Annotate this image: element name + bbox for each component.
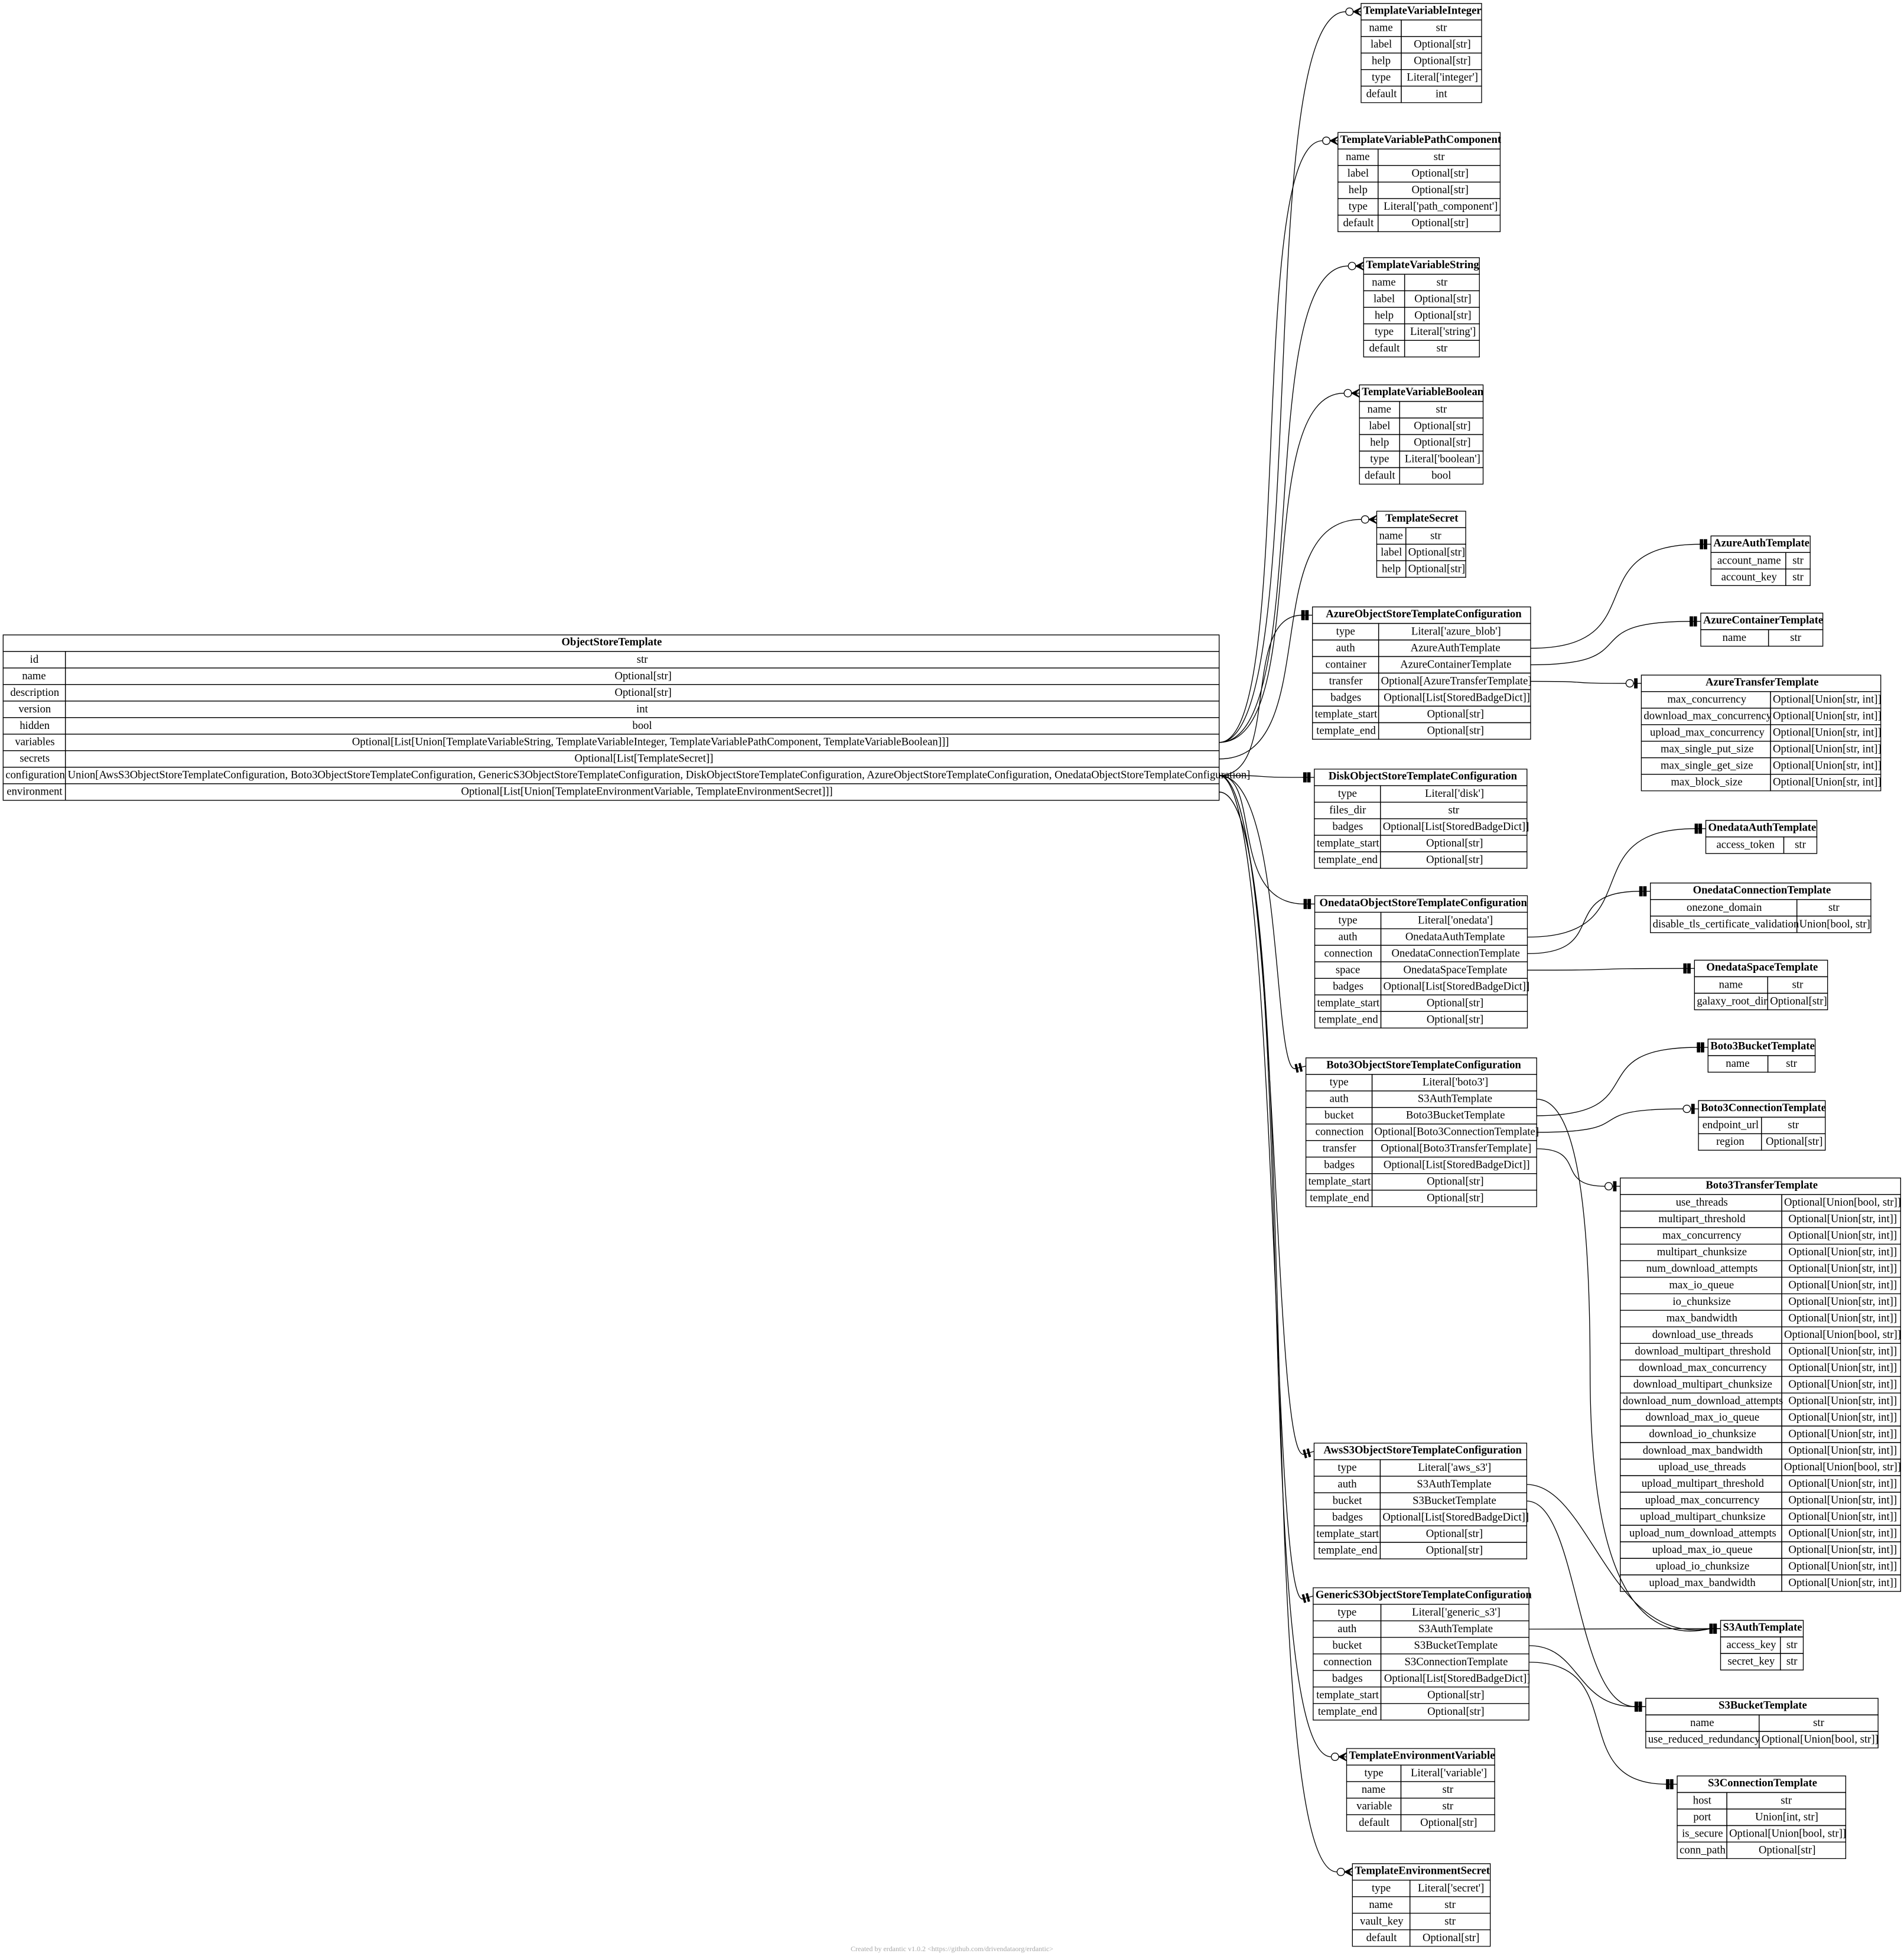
svg-text:Optional[List[StoredBadgeDict]: Optional[List[StoredBadgeDict]] <box>1383 821 1529 833</box>
svg-text:upload_max_bandwidth: upload_max_bandwidth <box>1649 1577 1756 1589</box>
svg-text:upload_use_threads: upload_use_threads <box>1658 1461 1746 1473</box>
svg-text:container: container <box>1326 658 1367 670</box>
svg-text:str: str <box>1792 571 1804 583</box>
svg-text:Optional[Union[str, int]]: Optional[Union[str, int]] <box>1773 743 1882 756</box>
svg-text:Optional[str]: Optional[str] <box>1414 309 1471 321</box>
svg-text:conn_path: conn_path <box>1680 1844 1726 1856</box>
svg-text:default: default <box>1359 1816 1390 1829</box>
svg-text:Optional[List[StoredBadgeDict]: Optional[List[StoredBadgeDict]] <box>1384 1159 1530 1171</box>
svg-text:is_secure: is_secure <box>1682 1827 1723 1839</box>
svg-text:help: help <box>1370 437 1389 449</box>
svg-text:Optional[str]: Optional[str] <box>1426 837 1483 849</box>
svg-text:Optional[List[TemplateSecret]]: Optional[List[TemplateSecret]] <box>575 753 714 765</box>
svg-text:Optional[Union[str, int]]: Optional[Union[str, int]] <box>1788 1428 1897 1440</box>
svg-text:access_key: access_key <box>1727 1639 1777 1651</box>
svg-text:template_start: template_start <box>1315 708 1378 720</box>
svg-text:bool: bool <box>1431 470 1451 482</box>
svg-text:bucket: bucket <box>1324 1109 1355 1122</box>
svg-text:Optional[Union[str, int]]: Optional[Union[str, int]] <box>1788 1312 1897 1324</box>
svg-text:name: name <box>1690 1717 1714 1729</box>
svg-text:AzureContainerTemplate: AzureContainerTemplate <box>1703 614 1823 627</box>
svg-text:Optional[AzureTransferTemplate: Optional[AzureTransferTemplate] <box>1381 675 1532 687</box>
svg-text:download_max_concurrency: download_max_concurrency <box>1643 710 1772 722</box>
svg-text:S3AuthTemplate: S3AuthTemplate <box>1418 1093 1492 1105</box>
svg-text:auth: auth <box>1339 930 1358 943</box>
svg-text:Optional[Union[str, int]]: Optional[Union[str, int]] <box>1773 710 1882 722</box>
svg-text:default: default <box>1365 470 1396 482</box>
svg-text:AzureContainerTemplate: AzureContainerTemplate <box>1400 658 1511 670</box>
svg-text:TemplateVariablePathComponent: TemplateVariablePathComponent <box>1340 134 1502 146</box>
svg-text:OnedataAuthTemplate: OnedataAuthTemplate <box>1405 930 1505 943</box>
svg-text:Optional[Union[str, int]]: Optional[Union[str, int]] <box>1788 1345 1897 1357</box>
svg-text:S3BucketTemplate: S3BucketTemplate <box>1719 1699 1807 1712</box>
svg-text:name: name <box>1723 631 1746 644</box>
svg-text:Optional[str]: Optional[str] <box>1408 562 1465 575</box>
svg-text:Optional[str]: Optional[str] <box>1411 167 1468 180</box>
svg-text:ObjectStoreTemplate: ObjectStoreTemplate <box>562 636 662 648</box>
svg-text:name: name <box>1369 1899 1392 1911</box>
svg-text:str: str <box>1813 1717 1824 1729</box>
svg-text:Optional[Union[str, int]]: Optional[Union[str, int]] <box>1773 727 1882 739</box>
svg-text:upload_max_io_queue: upload_max_io_queue <box>1652 1544 1753 1556</box>
svg-text:Boto3ConnectionTemplate: Boto3ConnectionTemplate <box>1701 1102 1826 1114</box>
svg-text:max_single_put_size: max_single_put_size <box>1661 743 1754 756</box>
svg-text:OnedataSpaceTemplate: OnedataSpaceTemplate <box>1706 961 1818 974</box>
svg-text:Optional[Union[str, int]]: Optional[Union[str, int]] <box>1788 1262 1897 1275</box>
svg-text:TemplateVariableInteger: TemplateVariableInteger <box>1363 4 1482 17</box>
svg-text:template_end: template_end <box>1316 724 1376 737</box>
svg-text:template_start: template_start <box>1309 1176 1371 1188</box>
svg-text:int: int <box>1436 88 1448 100</box>
svg-text:Optional[Union[str, int]]: Optional[Union[str, int]] <box>1788 1444 1897 1457</box>
svg-text:Literal['onedata']: Literal['onedata'] <box>1418 914 1493 926</box>
svg-text:Literal['aws_s3']: Literal['aws_s3'] <box>1418 1461 1491 1474</box>
svg-text:vault_key: vault_key <box>1360 1915 1404 1928</box>
svg-text:Optional[List[StoredBadgeDict]: Optional[List[StoredBadgeDict]] <box>1384 980 1530 992</box>
svg-text:Optional[str]: Optional[str] <box>1411 184 1468 196</box>
svg-text:Optional[str]: Optional[str] <box>1426 1528 1483 1540</box>
svg-text:Optional[Union[str, int]]: Optional[Union[str, int]] <box>1788 1395 1897 1407</box>
svg-text:variable: variable <box>1356 1800 1392 1812</box>
svg-text:Optional[Boto3ConnectionTempla: Optional[Boto3ConnectionTemplate] <box>1375 1126 1539 1138</box>
svg-text:download_io_chunksize: download_io_chunksize <box>1649 1428 1756 1440</box>
svg-text:Optional[Union[bool, str]]: Optional[Union[bool, str]] <box>1784 1196 1901 1209</box>
svg-text:str: str <box>1444 1899 1456 1911</box>
svg-text:Optional[str]: Optional[str] <box>1414 437 1470 449</box>
svg-text:connection: connection <box>1316 1126 1365 1138</box>
svg-text:Union[int, str]: Union[int, str] <box>1755 1811 1818 1823</box>
svg-text:description: description <box>10 686 60 699</box>
svg-text:auth: auth <box>1330 1093 1349 1105</box>
svg-text:template_end: template_end <box>1319 1013 1378 1025</box>
svg-text:help: help <box>1372 55 1391 67</box>
svg-text:download_multipart_threshold: download_multipart_threshold <box>1635 1345 1771 1357</box>
svg-text:environment: environment <box>6 786 63 798</box>
svg-text:secrets: secrets <box>19 753 50 765</box>
svg-text:template_start: template_start <box>1317 837 1379 849</box>
svg-text:str: str <box>1786 1655 1798 1668</box>
svg-text:Optional[str]: Optional[str] <box>1759 1844 1815 1856</box>
svg-text:Union[AwsS3ObjectStoreTemplate: Union[AwsS3ObjectStoreTemplateConfigurat… <box>68 769 1251 782</box>
svg-text:badges: badges <box>1330 691 1361 704</box>
svg-text:Optional[List[Union[TemplateEn: Optional[List[Union[TemplateEnvironmentV… <box>461 786 833 798</box>
svg-text:connection: connection <box>1324 947 1374 959</box>
svg-text:use_threads: use_threads <box>1676 1196 1728 1209</box>
svg-text:io_chunksize: io_chunksize <box>1672 1295 1730 1308</box>
svg-text:str: str <box>1437 342 1448 354</box>
svg-text:bucket: bucket <box>1333 1495 1363 1507</box>
svg-text:label: label <box>1381 546 1402 558</box>
svg-text:label: label <box>1369 420 1390 432</box>
svg-text:Optional[Union[str, int]]: Optional[Union[str, int]] <box>1788 1378 1897 1391</box>
svg-text:Optional[str]: Optional[str] <box>1414 420 1470 432</box>
svg-text:max_single_get_size: max_single_get_size <box>1661 760 1753 772</box>
svg-text:Optional[str]: Optional[str] <box>1427 1176 1483 1188</box>
svg-text:type: type <box>1372 71 1391 84</box>
svg-text:Optional[str]: Optional[str] <box>1426 854 1483 866</box>
svg-text:download_multipart_chunksize: download_multipart_chunksize <box>1633 1378 1772 1391</box>
svg-text:str: str <box>1436 403 1447 416</box>
svg-text:type: type <box>1337 1606 1356 1619</box>
svg-text:num_download_attempts: num_download_attempts <box>1646 1262 1758 1275</box>
svg-text:upload_max_concurrency: upload_max_concurrency <box>1650 727 1765 739</box>
svg-text:help: help <box>1382 562 1401 575</box>
svg-text:str: str <box>1448 804 1459 816</box>
svg-text:OnedataObjectStoreTemplateConf: OnedataObjectStoreTemplateConfiguration <box>1320 897 1528 909</box>
svg-text:type: type <box>1336 625 1355 637</box>
svg-text:AzureObjectStoreTemplateConfig: AzureObjectStoreTemplateConfiguration <box>1326 608 1522 620</box>
svg-text:str: str <box>1781 1794 1792 1806</box>
svg-text:Optional[Union[str, int]]: Optional[Union[str, int]] <box>1773 694 1882 706</box>
svg-text:Literal['azure_blob']: Literal['azure_blob'] <box>1411 625 1501 637</box>
svg-text:Optional[str]: Optional[str] <box>1427 1705 1484 1718</box>
svg-text:multipart_chunksize: multipart_chunksize <box>1657 1246 1747 1258</box>
svg-text:str: str <box>1437 276 1448 288</box>
svg-text:Boto3BucketTemplate: Boto3BucketTemplate <box>1710 1040 1815 1053</box>
svg-text:Optional[Union[str, int]]: Optional[Union[str, int]] <box>1788 1560 1897 1572</box>
svg-text:str: str <box>1786 1639 1798 1651</box>
svg-text:str: str <box>1786 1057 1797 1070</box>
svg-text:id: id <box>30 653 39 666</box>
svg-text:template_start: template_start <box>1316 1528 1379 1540</box>
svg-text:S3AuthTemplate: S3AuthTemplate <box>1418 1623 1493 1635</box>
svg-text:template_start: template_start <box>1316 1689 1379 1701</box>
svg-text:Boto3BucketTemplate: Boto3BucketTemplate <box>1406 1109 1505 1122</box>
svg-text:template_start: template_start <box>1317 997 1380 1009</box>
svg-text:Boto3TransferTemplate: Boto3TransferTemplate <box>1706 1179 1818 1191</box>
svg-text:Optional[Union[str, int]]: Optional[Union[str, int]] <box>1788 1477 1897 1490</box>
svg-text:template_end: template_end <box>1310 1192 1369 1204</box>
svg-text:str: str <box>1430 529 1441 542</box>
svg-text:OnedataAuthTemplate: OnedataAuthTemplate <box>1708 821 1817 834</box>
svg-text:Optional[List[StoredBadgeDict]: Optional[List[StoredBadgeDict]] <box>1384 1672 1531 1685</box>
svg-text:str: str <box>1792 978 1804 991</box>
svg-text:Literal['boolean']: Literal['boolean'] <box>1405 453 1480 465</box>
svg-text:transfer: transfer <box>1323 1142 1357 1155</box>
svg-text:Optional[str]: Optional[str] <box>1408 546 1465 558</box>
svg-text:name: name <box>1726 1057 1749 1070</box>
svg-text:Optional[Union[bool, str]]: Optional[Union[bool, str]] <box>1784 1461 1901 1473</box>
svg-text:name: name <box>1362 1783 1385 1796</box>
svg-text:Literal['path_component']: Literal['path_component'] <box>1384 200 1498 213</box>
svg-text:Optional[Union[str, int]]: Optional[Union[str, int]] <box>1788 1577 1897 1589</box>
svg-text:name: name <box>1372 276 1395 288</box>
svg-text:S3BucketTemplate: S3BucketTemplate <box>1414 1639 1498 1652</box>
svg-text:int: int <box>636 703 649 715</box>
svg-text:variables: variables <box>15 736 54 748</box>
svg-text:TemplateVariableString: TemplateVariableString <box>1366 259 1479 271</box>
svg-text:max_block_size: max_block_size <box>1671 776 1742 789</box>
svg-text:template_end: template_end <box>1318 854 1378 866</box>
svg-text:S3AuthTemplate: S3AuthTemplate <box>1417 1478 1491 1490</box>
svg-text:Optional[str]: Optional[str] <box>1427 708 1484 720</box>
svg-text:Optional[str]: Optional[str] <box>1427 724 1484 737</box>
svg-text:str: str <box>1444 1915 1456 1928</box>
svg-text:name: name <box>1368 403 1391 416</box>
svg-text:Optional[str]: Optional[str] <box>615 670 672 682</box>
svg-text:Optional[str]: Optional[str] <box>1427 1013 1483 1025</box>
svg-text:default: default <box>1369 342 1401 354</box>
svg-text:Optional[Union[bool, str]]: Optional[Union[bool, str]] <box>1762 1733 1879 1746</box>
svg-text:OnedataConnectionTemplate: OnedataConnectionTemplate <box>1693 884 1831 896</box>
svg-text:bucket: bucket <box>1333 1639 1363 1652</box>
svg-text:Optional[str]: Optional[str] <box>1411 217 1468 229</box>
svg-text:Optional[str]: Optional[str] <box>1423 1932 1479 1944</box>
svg-text:account_name: account_name <box>1717 554 1781 566</box>
svg-text:Optional[str]: Optional[str] <box>1766 1135 1822 1148</box>
svg-text:Optional[str]: Optional[str] <box>615 686 672 699</box>
svg-text:download_max_concurrency: download_max_concurrency <box>1639 1362 1767 1374</box>
svg-text:type: type <box>1349 200 1368 213</box>
svg-text:str: str <box>1434 151 1445 163</box>
svg-text:Optional[Union[str, int]]: Optional[Union[str, int]] <box>1773 776 1882 789</box>
svg-text:Optional[List[Union[TemplateVa: Optional[List[Union[TemplateVariableStri… <box>352 736 949 748</box>
svg-text:type: type <box>1372 1882 1391 1894</box>
svg-text:endpoint_url: endpoint_url <box>1703 1119 1759 1131</box>
svg-text:Optional[Union[str, int]]: Optional[Union[str, int]] <box>1788 1213 1897 1225</box>
svg-text:Optional[str]: Optional[str] <box>1427 1689 1484 1701</box>
svg-text:Literal['generic_s3']: Literal['generic_s3'] <box>1412 1606 1501 1619</box>
svg-text:Optional[Union[str, int]]: Optional[Union[str, int]] <box>1788 1229 1897 1242</box>
svg-text:GenericS3ObjectStoreTemplateCo: GenericS3ObjectStoreTemplateConfiguratio… <box>1316 1588 1532 1601</box>
svg-text:type: type <box>1370 453 1389 465</box>
svg-text:Optional[Union[str, int]]: Optional[Union[str, int]] <box>1788 1295 1897 1308</box>
svg-text:str: str <box>1790 631 1801 644</box>
svg-text:S3ConnectionTemplate: S3ConnectionTemplate <box>1708 1777 1817 1789</box>
svg-text:upload_io_chunksize: upload_io_chunksize <box>1656 1560 1750 1572</box>
svg-text:type: type <box>1339 914 1358 926</box>
svg-text:TemplateSecret: TemplateSecret <box>1385 512 1459 525</box>
svg-text:Optional[Union[str, int]]: Optional[Union[str, int]] <box>1788 1544 1897 1556</box>
svg-text:hidden: hidden <box>19 719 50 732</box>
svg-text:Optional[Union[bool, str]]: Optional[Union[bool, str]] <box>1729 1827 1846 1839</box>
svg-text:galaxy_root_dir: galaxy_root_dir <box>1697 995 1768 1007</box>
svg-text:name: name <box>1369 22 1392 34</box>
svg-text:AzureAuthTemplate: AzureAuthTemplate <box>1713 537 1809 549</box>
svg-text:str: str <box>1795 839 1806 851</box>
svg-text:max_concurrency: max_concurrency <box>1667 694 1746 706</box>
svg-text:label: label <box>1371 38 1392 51</box>
svg-text:disable_tls_certificate_valida: disable_tls_certificate_validation <box>1653 918 1799 930</box>
svg-text:account_key: account_key <box>1721 571 1778 583</box>
svg-text:Optional[Union[str, int]]: Optional[Union[str, int]] <box>1788 1510 1897 1523</box>
svg-text:label: label <box>1348 167 1369 180</box>
svg-text:str: str <box>1442 1800 1453 1812</box>
svg-text:S3BucketTemplate: S3BucketTemplate <box>1412 1495 1496 1507</box>
svg-text:upload_num_download_attempts: upload_num_download_attempts <box>1629 1527 1776 1539</box>
svg-text:name: name <box>1719 978 1743 991</box>
svg-text:max_io_queue: max_io_queue <box>1669 1279 1734 1291</box>
svg-text:badges: badges <box>1332 821 1363 833</box>
svg-text:Optional[str]: Optional[str] <box>1414 292 1471 305</box>
svg-text:type: type <box>1330 1076 1349 1089</box>
svg-text:Optional[str]: Optional[str] <box>1420 1816 1477 1829</box>
svg-text:AwsS3ObjectStoreTemplateConfig: AwsS3ObjectStoreTemplateConfiguration <box>1323 1444 1522 1457</box>
svg-text:Literal['integer']: Literal['integer'] <box>1407 71 1478 84</box>
svg-text:type: type <box>1375 325 1394 338</box>
svg-text:upload_max_concurrency: upload_max_concurrency <box>1645 1494 1760 1506</box>
svg-text:Optional[str]: Optional[str] <box>1770 995 1827 1007</box>
svg-text:TemplateEnvironmentSecret: TemplateEnvironmentSecret <box>1355 1864 1490 1877</box>
svg-text:port: port <box>1693 1811 1711 1823</box>
svg-text:type: type <box>1338 787 1357 800</box>
svg-text:str: str <box>1788 1119 1799 1131</box>
svg-text:connection: connection <box>1323 1656 1372 1668</box>
svg-text:multipart_threshold: multipart_threshold <box>1658 1213 1746 1225</box>
svg-text:download_max_bandwidth: download_max_bandwidth <box>1643 1444 1763 1457</box>
svg-text:upload_multipart_threshold: upload_multipart_threshold <box>1642 1477 1765 1490</box>
svg-text:OnedataConnectionTemplate: OnedataConnectionTemplate <box>1392 947 1520 959</box>
svg-text:default: default <box>1343 217 1374 229</box>
svg-text:version: version <box>18 703 51 715</box>
svg-text:Optional[Union[str, int]]: Optional[Union[str, int]] <box>1788 1494 1897 1506</box>
svg-text:badges: badges <box>1332 1511 1363 1523</box>
svg-text:str: str <box>1436 22 1447 34</box>
svg-text:str: str <box>1792 554 1804 566</box>
svg-text:template_end: template_end <box>1318 1705 1378 1718</box>
svg-text:download_max_io_queue: download_max_io_queue <box>1645 1411 1759 1424</box>
svg-text:access_token: access_token <box>1717 839 1775 851</box>
svg-text:max_bandwidth: max_bandwidth <box>1667 1312 1738 1324</box>
svg-text:default: default <box>1366 1932 1398 1944</box>
svg-text:template_end: template_end <box>1318 1544 1378 1557</box>
svg-text:onezone_domain: onezone_domain <box>1687 901 1762 914</box>
svg-text:auth: auth <box>1336 642 1356 654</box>
svg-text:auth: auth <box>1337 1478 1357 1490</box>
svg-text:type: type <box>1364 1767 1383 1779</box>
svg-text:Optional[str]: Optional[str] <box>1427 1192 1483 1204</box>
svg-text:Literal['boto3']: Literal['boto3'] <box>1423 1076 1488 1089</box>
svg-text:Optional[Union[bool, str]]: Optional[Union[bool, str]] <box>1784 1329 1901 1341</box>
svg-text:name: name <box>1346 151 1369 163</box>
svg-text:download_num_download_attempts: download_num_download_attempts <box>1623 1395 1783 1407</box>
svg-text:type: type <box>1337 1461 1356 1474</box>
svg-text:Optional[Union[str, int]]: Optional[Union[str, int]] <box>1788 1362 1897 1374</box>
svg-text:host: host <box>1693 1794 1712 1806</box>
svg-text:Literal['disk']: Literal['disk'] <box>1425 787 1484 800</box>
svg-text:Boto3ObjectStoreTemplateConfig: Boto3ObjectStoreTemplateConfiguration <box>1326 1059 1521 1071</box>
svg-text:space: space <box>1336 963 1360 976</box>
svg-text:name: name <box>1379 529 1402 542</box>
svg-text:TemplateVariableBoolean: TemplateVariableBoolean <box>1362 386 1484 398</box>
svg-text:Literal['variable']: Literal['variable'] <box>1411 1767 1487 1779</box>
svg-text:help: help <box>1375 309 1394 321</box>
svg-text:Optional[Union[str, int]]: Optional[Union[str, int]] <box>1773 760 1882 772</box>
svg-text:str: str <box>637 653 648 666</box>
svg-text:Optional[Union[str, int]]: Optional[Union[str, int]] <box>1788 1246 1897 1258</box>
svg-text:upload_multipart_chunksize: upload_multipart_chunksize <box>1640 1510 1765 1523</box>
svg-text:configuration: configuration <box>5 769 65 782</box>
svg-text:Optional[List[StoredBadgeDict]: Optional[List[StoredBadgeDict]] <box>1384 691 1530 704</box>
svg-text:Literal['string']: Literal['string'] <box>1410 325 1476 338</box>
svg-text:transfer: transfer <box>1329 675 1363 687</box>
svg-text:str: str <box>1828 901 1840 914</box>
svg-text:Optional[str]: Optional[str] <box>1427 997 1483 1009</box>
svg-text:AzureAuthTemplate: AzureAuthTemplate <box>1411 642 1501 654</box>
svg-text:TemplateEnvironmentVariable: TemplateEnvironmentVariable <box>1349 1750 1495 1762</box>
svg-text:Literal['secret']: Literal['secret'] <box>1418 1882 1484 1894</box>
svg-text:help: help <box>1349 184 1368 196</box>
svg-text:badges: badges <box>1324 1159 1355 1171</box>
svg-text:str: str <box>1442 1783 1453 1796</box>
svg-text:Optional[Union[str, int]]: Optional[Union[str, int]] <box>1788 1411 1897 1424</box>
svg-text:Optional[Union[str, int]]: Optional[Union[str, int]] <box>1788 1279 1897 1291</box>
svg-text:download_use_threads: download_use_threads <box>1652 1329 1753 1341</box>
svg-text:Optional[Union[str, int]]: Optional[Union[str, int]] <box>1788 1527 1897 1539</box>
svg-text:Optional[str]: Optional[str] <box>1414 38 1470 51</box>
svg-text:use_reduced_redundancy: use_reduced_redundancy <box>1648 1733 1760 1746</box>
svg-text:DiskObjectStoreTemplateConfigu: DiskObjectStoreTemplateConfiguration <box>1329 770 1518 783</box>
svg-text:Optional[Boto3TransferTemplate: Optional[Boto3TransferTemplate] <box>1381 1142 1531 1155</box>
svg-text:default: default <box>1366 88 1398 100</box>
svg-text:label: label <box>1374 292 1395 305</box>
svg-text:Optional[List[StoredBadgeDict]: Optional[List[StoredBadgeDict]] <box>1382 1511 1529 1523</box>
svg-text:OnedataSpaceTemplate: OnedataSpaceTemplate <box>1404 963 1508 976</box>
svg-text:secret_key: secret_key <box>1728 1655 1775 1668</box>
svg-text:Union[bool, str]: Union[bool, str] <box>1799 918 1870 930</box>
svg-text:badges: badges <box>1332 1672 1363 1685</box>
svg-text:Optional[str]: Optional[str] <box>1426 1544 1483 1557</box>
svg-text:Optional[str]: Optional[str] <box>1414 55 1470 67</box>
svg-text:max_concurrency: max_concurrency <box>1662 1229 1742 1242</box>
svg-text:files_dir: files_dir <box>1329 804 1366 816</box>
svg-text:badges: badges <box>1333 980 1363 992</box>
svg-text:S3AuthTemplate: S3AuthTemplate <box>1723 1622 1802 1634</box>
svg-text:auth: auth <box>1337 1623 1357 1635</box>
svg-text:name: name <box>22 670 45 682</box>
svg-text:region: region <box>1716 1135 1744 1148</box>
svg-text:S3ConnectionTemplate: S3ConnectionTemplate <box>1405 1656 1508 1668</box>
svg-text:AzureTransferTemplate: AzureTransferTemplate <box>1706 676 1818 688</box>
svg-text:bool: bool <box>633 719 652 732</box>
